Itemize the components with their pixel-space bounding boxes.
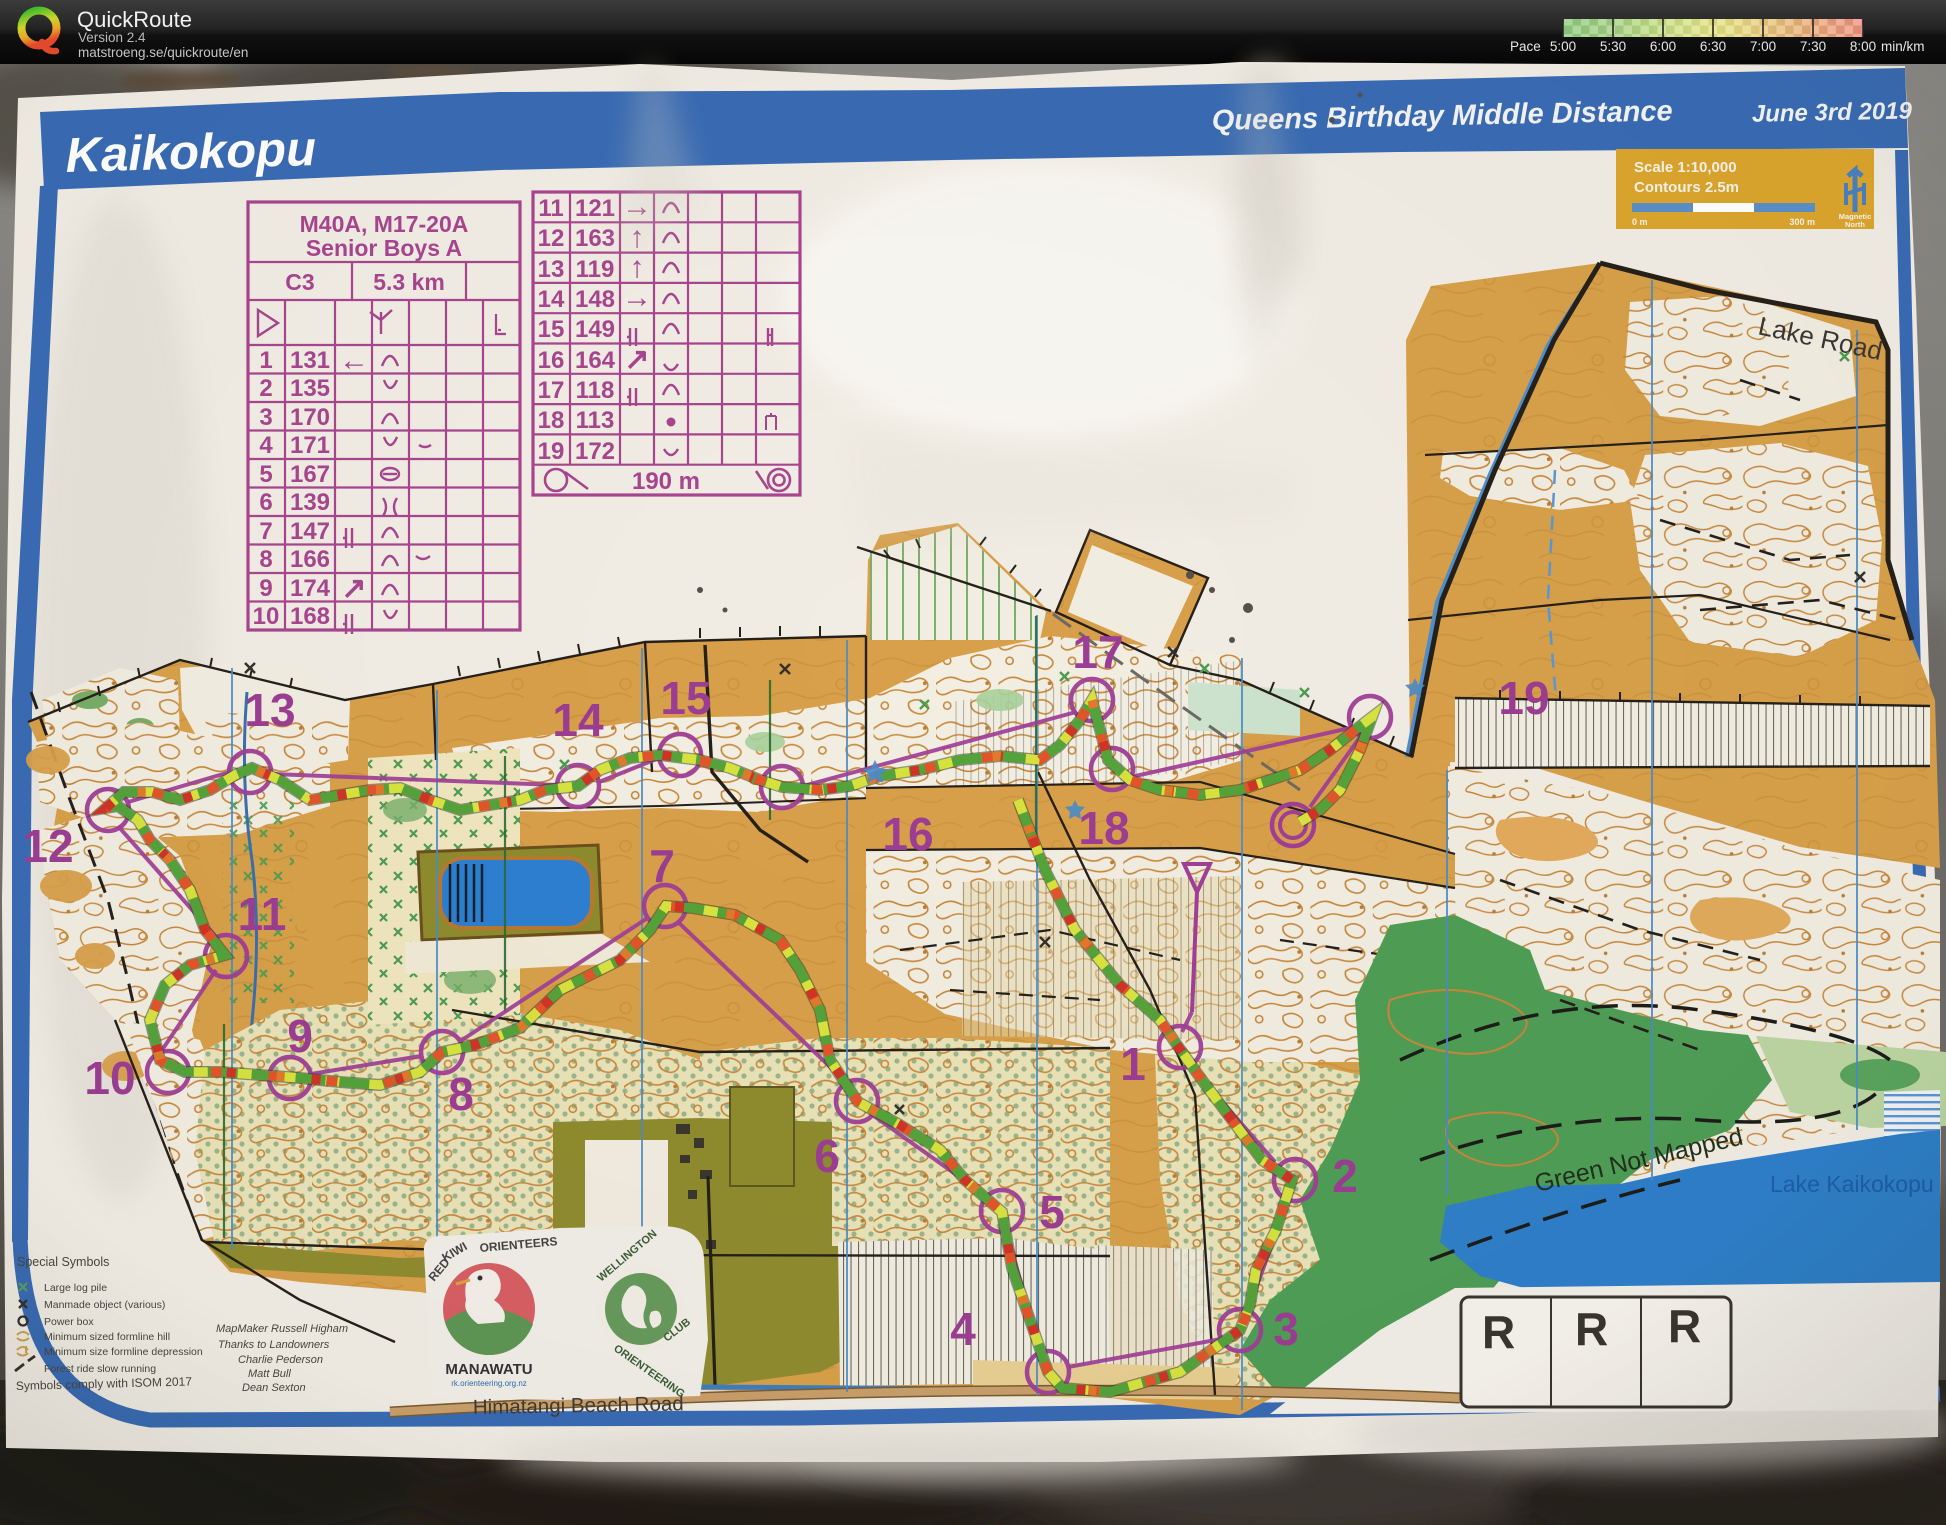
svg-text:6:30: 6:30	[1700, 39, 1726, 54]
svg-text:5:00: 5:00	[1550, 39, 1576, 54]
svg-text:Version 2.4: Version 2.4	[78, 30, 146, 45]
svg-text:QuickRoute: QuickRoute	[77, 7, 192, 32]
svg-text:matstroeng.se/quickroute/en: matstroeng.se/quickroute/en	[78, 45, 248, 60]
svg-text:6:00: 6:00	[1650, 39, 1676, 54]
svg-text:7:00: 7:00	[1750, 39, 1776, 54]
svg-text:Pace: Pace	[1510, 39, 1541, 54]
svg-text:min/km: min/km	[1881, 39, 1925, 54]
svg-text:5:30: 5:30	[1600, 39, 1626, 54]
svg-text:8:00: 8:00	[1850, 39, 1876, 54]
svg-text:7:30: 7:30	[1800, 39, 1826, 54]
